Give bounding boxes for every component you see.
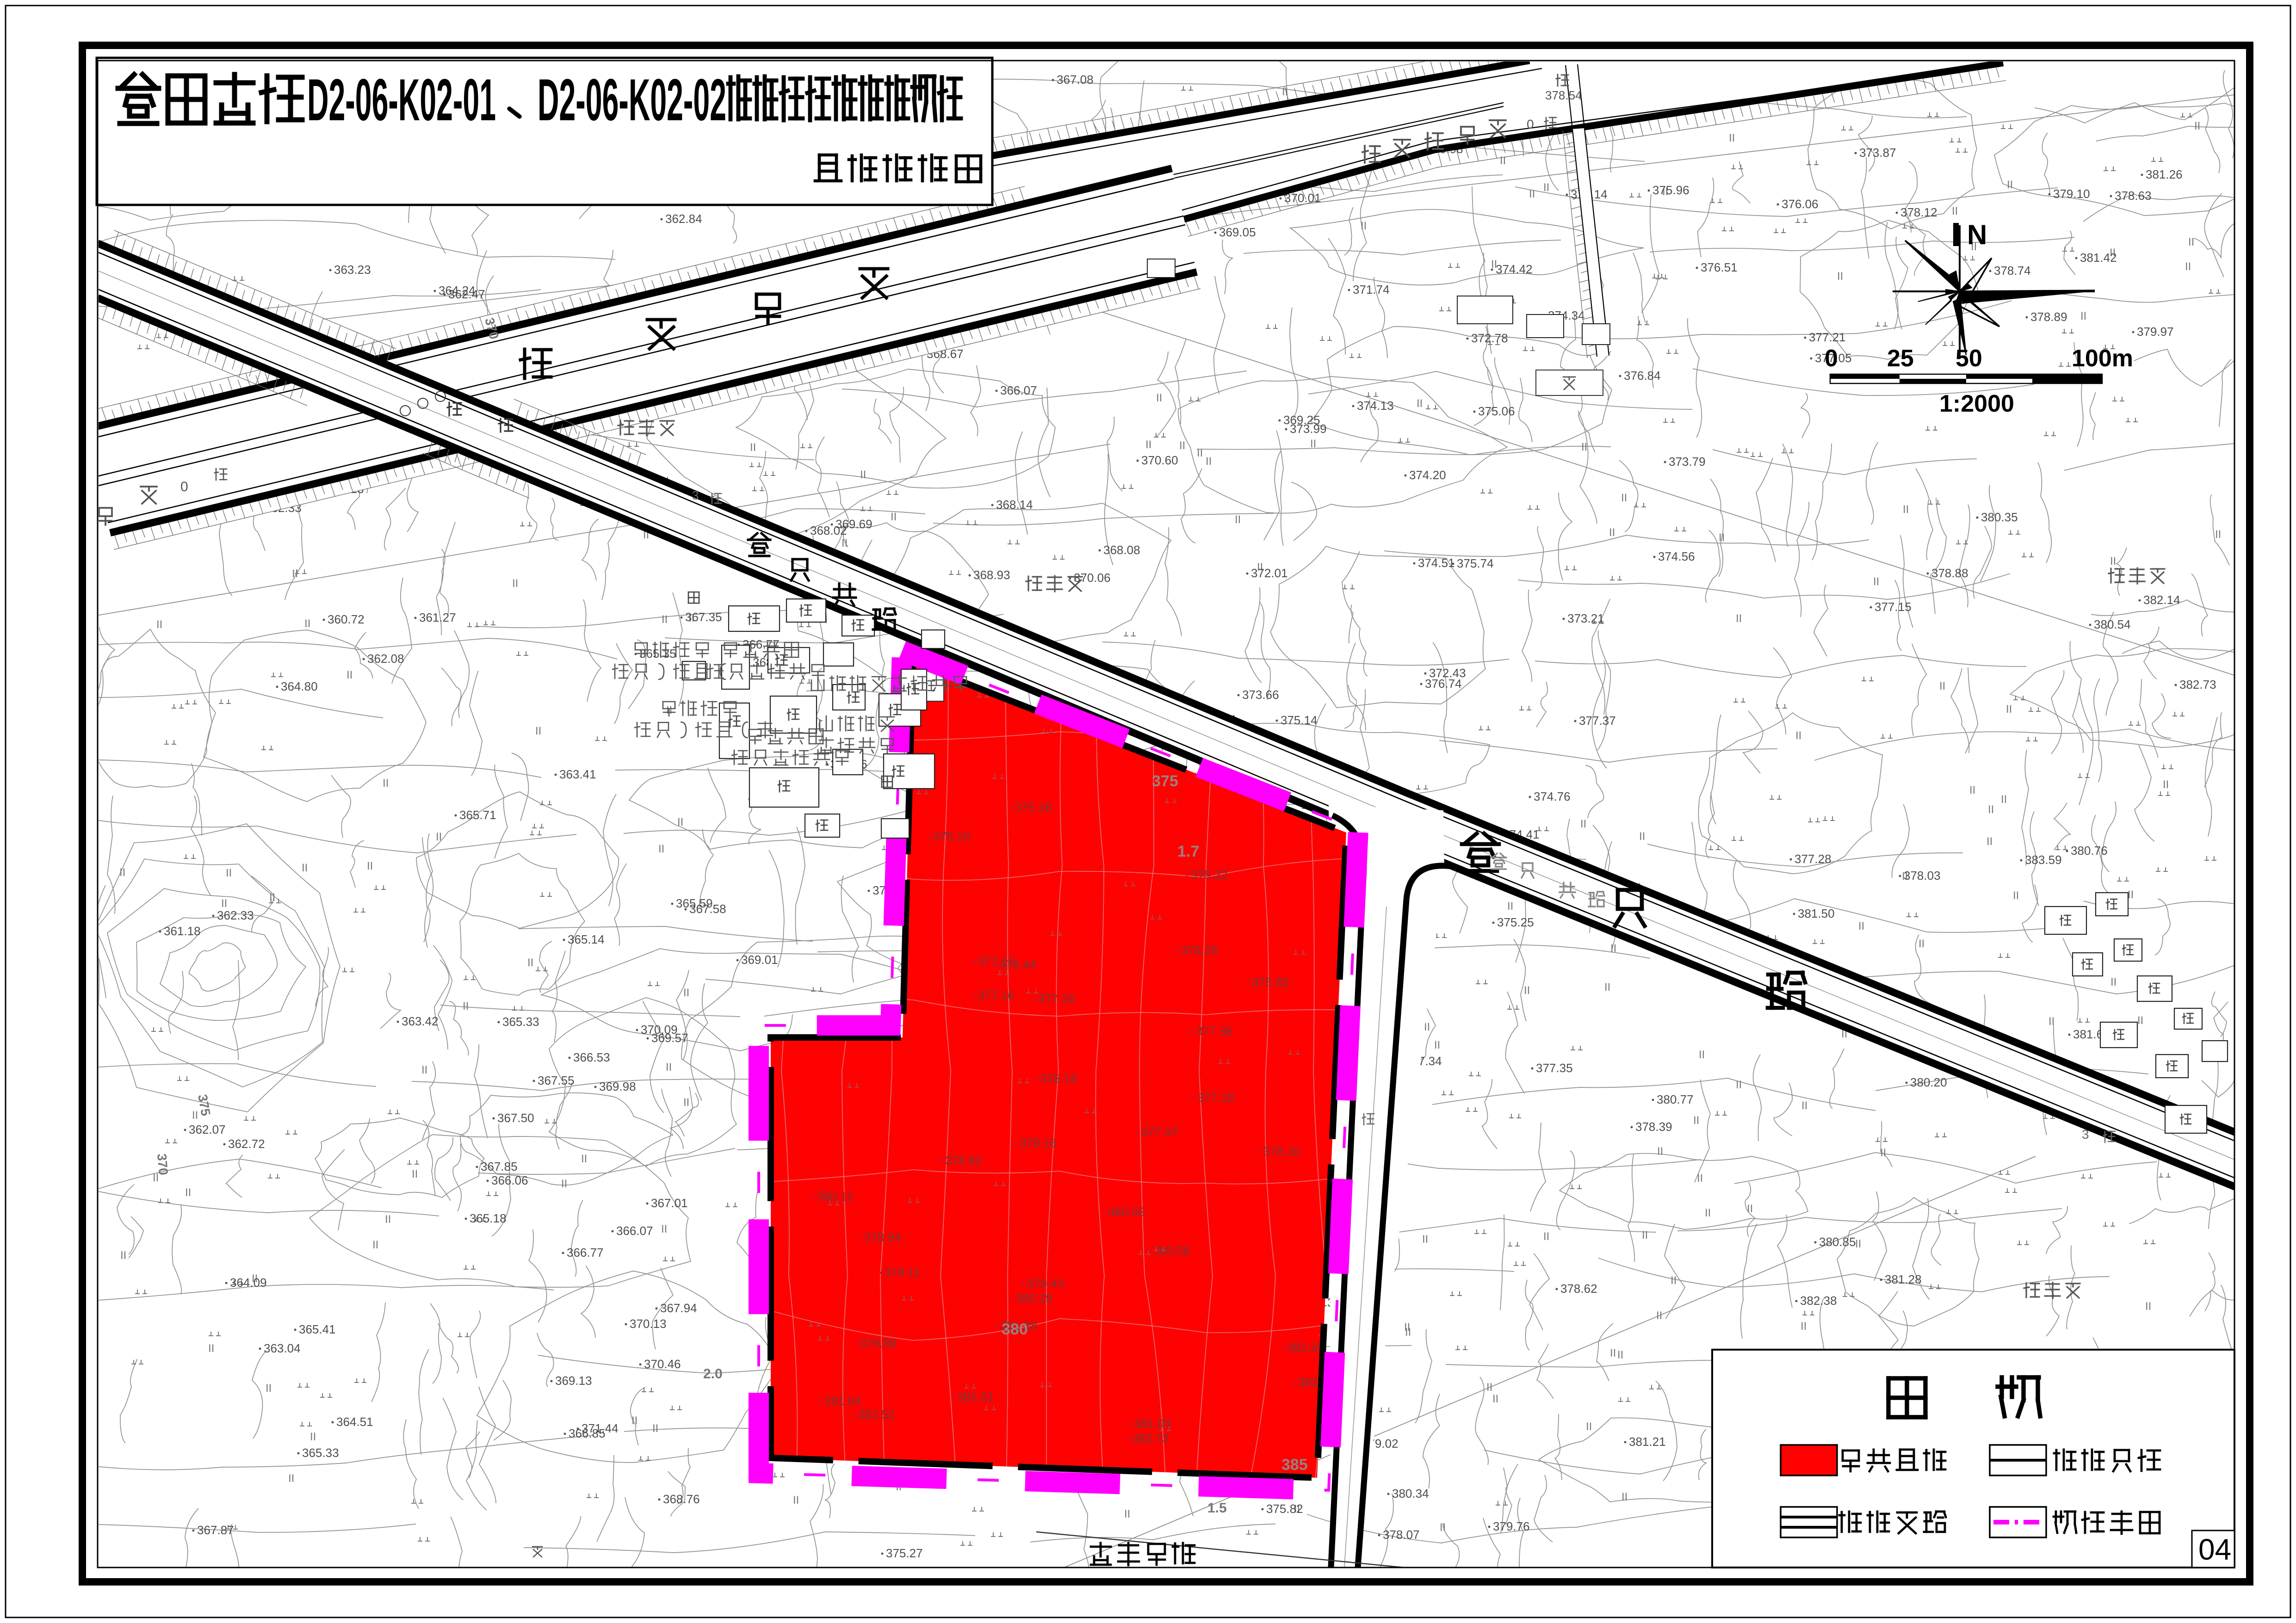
svg-text:II: II (1507, 900, 1513, 913)
svg-text:04: 04 (2198, 1533, 2231, 1566)
svg-text:360.72: 360.72 (328, 612, 365, 626)
svg-text:II: II (1903, 503, 1909, 516)
svg-text:377.36: 377.36 (1196, 1024, 1233, 1038)
svg-text:1:2000: 1:2000 (1939, 390, 2014, 417)
svg-text:368.14: 368.14 (996, 498, 1033, 512)
svg-text:II: II (2080, 310, 2086, 322)
svg-text:II: II (1987, 835, 1993, 848)
svg-text:II: II (1699, 1049, 1705, 1061)
svg-text:II: II (367, 860, 373, 872)
svg-text:II: II (842, 537, 848, 549)
svg-text:376.06: 376.06 (1782, 197, 1819, 211)
svg-text:378.94: 378.94 (864, 1230, 901, 1244)
svg-text:373.87: 373.87 (1859, 146, 1896, 160)
svg-text:379.76: 379.76 (1493, 1519, 1530, 1533)
svg-text:381.28: 381.28 (1885, 1272, 1922, 1286)
svg-text:II: II (436, 831, 442, 843)
svg-text:II: II (2048, 1015, 2055, 1028)
svg-text:367.58: 367.58 (689, 902, 726, 916)
svg-text:3: 3 (692, 488, 699, 502)
svg-text:369.13: 369.13 (555, 1374, 592, 1388)
svg-text:II: II (860, 469, 866, 481)
svg-text:II: II (1405, 1326, 1411, 1339)
svg-text:372.78: 372.78 (1471, 331, 1508, 345)
svg-text:381.09: 381.09 (1134, 1417, 1171, 1431)
svg-text:366.06: 366.06 (491, 1173, 528, 1187)
svg-text:II: II (1639, 830, 1645, 843)
svg-text:381.21: 381.21 (1629, 1435, 1666, 1449)
svg-text:II: II (2007, 179, 2013, 191)
svg-text:362.84: 362.84 (665, 212, 702, 226)
svg-text:II: II (1609, 526, 1615, 539)
svg-text:II: II (1543, 181, 1549, 194)
svg-text:374.76: 374.76 (1534, 790, 1571, 803)
svg-text:II: II (1729, 132, 1735, 144)
svg-text:367.01: 367.01 (651, 1196, 688, 1210)
svg-text:378.63: 378.63 (2115, 189, 2152, 203)
svg-text:II: II (221, 897, 227, 910)
svg-text:II: II (1610, 1347, 1616, 1359)
svg-text:366.07: 366.07 (1000, 383, 1037, 397)
svg-text:375.96: 375.96 (1652, 183, 1690, 197)
svg-text:2.0: 2.0 (703, 1366, 723, 1382)
svg-text:382.52: 382.52 (858, 1407, 895, 1421)
svg-text:361.27: 361.27 (419, 611, 456, 624)
svg-text:II: II (1235, 513, 1241, 526)
svg-text:II: II (1918, 938, 1925, 950)
svg-text:378.10: 378.10 (1263, 1144, 1300, 1158)
svg-text:383.59: 383.59 (2025, 853, 2062, 867)
svg-text:II: II (2137, 1014, 2143, 1027)
svg-text:II: II (1736, 612, 1742, 625)
svg-text:II: II (1361, 220, 1367, 232)
svg-text:II: II (661, 1223, 667, 1235)
svg-text:II: II (677, 816, 683, 828)
svg-text:364.80: 364.80 (281, 679, 318, 693)
svg-text:II: II (1179, 439, 1185, 452)
svg-text:II: II (662, 613, 668, 626)
svg-text:II: II (288, 1472, 294, 1485)
svg-text:II: II (1156, 392, 1162, 404)
svg-text:380.56: 380.56 (1153, 1244, 1190, 1258)
svg-text:375.15: 375.15 (933, 829, 970, 843)
svg-text:375.22: 375.22 (1191, 868, 1228, 882)
svg-text:II: II (1621, 492, 1627, 504)
svg-text:II: II (1197, 447, 1203, 459)
svg-text:362.72: 362.72 (228, 1137, 265, 1151)
svg-text:II: II (2215, 528, 2221, 541)
svg-text:II: II (1747, 1203, 1753, 1215)
svg-text:366.77: 366.77 (567, 1246, 604, 1259)
svg-text:382.73: 382.73 (1132, 1432, 1169, 1445)
svg-text:II: II (2110, 555, 2116, 568)
svg-text:364.51: 364.51 (336, 1415, 373, 1429)
svg-text:381.59: 381.59 (1287, 1340, 1324, 1354)
svg-text:II: II (527, 957, 533, 969)
svg-text:375.27: 375.27 (886, 1546, 923, 1560)
svg-text:367.85: 367.85 (481, 1160, 518, 1173)
svg-text:II: II (1310, 438, 1316, 450)
svg-text:II: II (119, 866, 125, 879)
svg-text:II: II (269, 891, 275, 904)
svg-text:II: II (463, 1000, 469, 1012)
svg-text:382.38: 382.38 (1800, 1294, 1837, 1308)
svg-text:II: II (1422, 1233, 1428, 1246)
svg-text:377.18: 377.18 (1197, 1091, 1234, 1105)
svg-text:365.71: 365.71 (459, 808, 496, 822)
svg-text:376.26: 376.26 (1181, 943, 1218, 957)
svg-text:D2-06-K02-01: D2-06-K02-01 (307, 67, 496, 133)
svg-text:364.09: 364.09 (230, 1276, 267, 1290)
svg-text:II: II (1524, 984, 1530, 997)
svg-text:380.34: 380.34 (1392, 1487, 1429, 1500)
svg-text:361.18: 361.18 (164, 924, 201, 938)
svg-text:II: II (1801, 1320, 1807, 1333)
svg-text:1.5: 1.5 (1207, 1500, 1227, 1516)
svg-text:II: II (226, 867, 232, 879)
svg-text:363.41: 363.41 (559, 767, 596, 781)
svg-text:0: 0 (1527, 117, 1534, 131)
svg-text:379.97: 379.97 (2137, 325, 2174, 339)
svg-text:373.66: 373.66 (1242, 688, 1279, 702)
svg-text:380.77: 380.77 (1657, 1092, 1694, 1106)
svg-text:365.41: 365.41 (299, 1322, 336, 1336)
svg-text:II: II (1858, 920, 1864, 932)
svg-text:II: II (666, 1061, 672, 1074)
svg-text:375.25: 375.25 (1497, 915, 1534, 929)
svg-text:378.39: 378.39 (1635, 1120, 1672, 1134)
svg-text:363.42: 363.42 (402, 1014, 439, 1028)
svg-text:374.42: 374.42 (1496, 262, 1533, 276)
svg-text:375.74: 375.74 (1457, 556, 1494, 570)
svg-text:D2-06-K02-02: D2-06-K02-02 (538, 67, 726, 133)
svg-text:373.21: 373.21 (1567, 611, 1604, 625)
svg-text:II: II (1543, 1230, 1549, 1243)
svg-text:II: II (2188, 236, 2194, 248)
svg-text:381.26: 381.26 (2146, 167, 2183, 181)
svg-text:379.88: 379.88 (860, 1336, 897, 1350)
svg-text:50: 50 (1956, 345, 1982, 372)
svg-text:II: II (652, 1422, 658, 1435)
svg-text:II: II (1880, 1147, 1886, 1159)
svg-text:378.89: 378.89 (2030, 310, 2067, 324)
svg-text:II: II (2006, 703, 2012, 716)
svg-text:II: II (1529, 188, 1535, 200)
svg-text:0: 0 (180, 479, 188, 494)
svg-text:II: II (208, 1342, 214, 1355)
svg-text:II: II (1206, 455, 1212, 468)
svg-text:II: II (1617, 1349, 1623, 1361)
svg-text:380.29: 380.29 (1015, 1291, 1052, 1305)
svg-text:385: 385 (1281, 1456, 1308, 1474)
svg-text:II: II (372, 1239, 378, 1251)
svg-text:365.14: 365.14 (568, 932, 605, 946)
svg-text:378.82: 378.82 (945, 1154, 982, 1167)
svg-text:376.44: 376.44 (999, 957, 1036, 971)
svg-text:377.37: 377.37 (1579, 714, 1616, 728)
svg-text:368.08: 368.08 (1103, 543, 1140, 557)
svg-text:376.51: 376.51 (1701, 260, 1738, 274)
svg-text:379.10: 379.10 (2053, 187, 2090, 201)
svg-text:100m: 100m (2072, 345, 2133, 372)
svg-text:375.83: 375.83 (1252, 975, 1289, 989)
svg-text:378.54: 378.54 (1545, 88, 1582, 102)
svg-text:366.53: 366.53 (573, 1050, 610, 1064)
svg-text:380.85: 380.85 (1819, 1235, 1856, 1249)
svg-text:374.13: 374.13 (1357, 399, 1394, 413)
svg-text:367.87: 367.87 (197, 1523, 234, 1537)
svg-text:376.74: 376.74 (1425, 677, 1462, 691)
svg-text:381.42: 381.42 (2080, 251, 2117, 265)
svg-text:377.26: 377.26 (1038, 992, 1075, 1006)
svg-text:379.43: 379.43 (1027, 1277, 1064, 1290)
svg-text:II: II (1657, 1145, 1663, 1158)
svg-text:II: II (385, 1213, 391, 1226)
svg-text:377.16: 377.16 (978, 988, 1015, 1002)
svg-text:II: II (1580, 818, 1586, 830)
svg-text:363.23: 363.23 (334, 263, 371, 277)
svg-text:362.33: 362.33 (217, 908, 254, 922)
svg-text:II: II (1440, 1521, 1446, 1534)
svg-text:378.88: 378.88 (1931, 566, 1968, 580)
svg-text:377.35: 377.35 (1536, 1061, 1573, 1075)
svg-text:II: II (1610, 942, 1616, 955)
svg-text:382.73: 382.73 (2179, 678, 2216, 691)
svg-text:380.35: 380.35 (1981, 510, 2018, 524)
svg-text:375: 375 (1152, 772, 1178, 790)
svg-text:II: II (1500, 154, 1506, 167)
svg-text:378.07: 378.07 (1383, 1528, 1420, 1542)
svg-text:381.50: 381.50 (1798, 907, 1835, 920)
svg-text:382.14: 382.14 (2143, 593, 2180, 607)
svg-text:II: II (192, 1109, 198, 1122)
svg-text:375.14: 375.14 (1281, 713, 1318, 727)
svg-text:II: II (891, 511, 897, 523)
svg-text:II: II (2163, 778, 2169, 791)
svg-text:377.28: 377.28 (1795, 852, 1832, 866)
svg-text:377.97: 377.97 (1141, 1125, 1178, 1139)
svg-text:363.04: 363.04 (264, 1341, 301, 1355)
svg-text:374.20: 374.20 (1409, 468, 1446, 482)
svg-text:II: II (581, 1153, 587, 1165)
svg-text:II: II (1801, 1099, 1807, 1112)
svg-text:II: II (304, 617, 310, 630)
svg-text:379.11: 379.11 (884, 1265, 920, 1279)
svg-text:362.47: 362.47 (448, 287, 485, 301)
svg-text:II: II (120, 1249, 126, 1262)
svg-text:367.94: 367.94 (660, 1301, 697, 1315)
svg-text:371.74: 371.74 (1353, 283, 1390, 296)
svg-text:0: 0 (1825, 345, 1838, 372)
svg-text:25: 25 (1887, 345, 1914, 372)
svg-text:II: II (1145, 438, 1151, 451)
svg-text:II: II (302, 862, 308, 874)
svg-text:II: II (2194, 120, 2200, 132)
svg-text:II: II (292, 568, 298, 580)
svg-text:II: II (1873, 575, 1879, 588)
svg-text:381.04: 381.04 (824, 1394, 861, 1408)
svg-text:II: II (512, 577, 518, 590)
svg-text:II: II (412, 1168, 418, 1180)
svg-text:380.54: 380.54 (2094, 617, 2131, 631)
svg-text:367.35: 367.35 (685, 610, 722, 624)
svg-text:II: II (1693, 1114, 1699, 1127)
svg-text:375.82: 375.82 (1266, 1502, 1303, 1516)
svg-text:II: II (1697, 1172, 1703, 1185)
svg-text:II: II (1671, 1274, 1677, 1287)
svg-text:II: II (658, 843, 664, 855)
svg-text:II: II (1656, 1309, 1662, 1322)
svg-text:II: II (421, 1064, 427, 1076)
svg-text:378.62: 378.62 (1560, 1282, 1597, 1296)
svg-text:II: II (561, 1178, 567, 1190)
svg-text:381.51: 381.51 (957, 1390, 994, 1404)
svg-text:375.06: 375.06 (1478, 404, 1515, 418)
svg-text:372.01: 372.01 (1251, 566, 1288, 580)
svg-text:II: II (1124, 1508, 1130, 1520)
svg-text:II: II (383, 777, 389, 790)
svg-text:II: II (1434, 1039, 1440, 1051)
svg-text:II: II (185, 1186, 191, 1199)
svg-text:II: II (1988, 803, 1994, 816)
svg-text:374.51: 374.51 (1418, 556, 1455, 570)
svg-text:II: II (683, 987, 689, 999)
svg-text:II: II (1621, 1491, 1628, 1503)
svg-text:II: II (535, 725, 541, 737)
svg-text:II: II (2185, 260, 2191, 273)
svg-text:377.21: 377.21 (1809, 330, 1846, 344)
svg-text:3: 3 (2082, 1127, 2089, 1142)
svg-text:368.93: 368.93 (973, 568, 1010, 582)
svg-text:369.01: 369.01 (741, 953, 778, 967)
svg-text:II: II (1586, 1420, 1592, 1433)
svg-text:378.03: 378.03 (1904, 869, 1941, 882)
svg-text:370.09: 370.09 (641, 1023, 678, 1037)
svg-text:376.84: 376.84 (1624, 369, 1661, 383)
svg-text:II: II (1705, 1207, 1711, 1219)
svg-text:II: II (683, 1096, 689, 1109)
svg-text:369.98: 369.98 (599, 1080, 636, 1093)
svg-text:II: II (1736, 1079, 1742, 1091)
svg-text:II: II (1604, 981, 1610, 994)
svg-text:365.33: 365.33 (502, 1015, 539, 1029)
svg-text:II: II (1795, 729, 1801, 742)
svg-text:II: II (2145, 1300, 2151, 1313)
svg-text:365.18: 365.18 (470, 1211, 507, 1225)
svg-text:II: II (1581, 441, 1587, 453)
svg-text:II: II (1952, 205, 1958, 217)
svg-text:375.18: 375.18 (1015, 800, 1052, 814)
svg-text:367.08: 367.08 (1057, 73, 1094, 86)
svg-text:378.74: 378.74 (1994, 264, 2031, 278)
svg-text:374.56: 374.56 (1658, 549, 1695, 563)
svg-text:II: II (1855, 1238, 1861, 1250)
svg-text:373.79: 373.79 (1669, 455, 1706, 469)
svg-text:380.76: 380.76 (2071, 844, 2108, 858)
svg-text:367.55: 367.55 (538, 1074, 575, 1087)
svg-text:II: II (266, 1382, 272, 1395)
svg-text:378.12: 378.12 (1900, 205, 1937, 219)
svg-text:379.16: 379.16 (1020, 1136, 1057, 1150)
svg-text:1.7: 1.7 (1177, 843, 1199, 860)
svg-text:II: II (310, 1431, 316, 1443)
svg-text:362.08: 362.08 (367, 652, 404, 666)
svg-text:368.76: 368.76 (663, 1492, 700, 1506)
svg-text:II: II (750, 441, 756, 454)
svg-text:II: II (1719, 531, 1725, 544)
svg-text:366.07: 366.07 (616, 1224, 653, 1238)
svg-text:380.02: 380.02 (1108, 1205, 1145, 1219)
svg-text:II: II (1642, 1229, 1648, 1241)
svg-text:378.16: 378.16 (1040, 1072, 1077, 1086)
svg-text:N: N (1967, 219, 1987, 250)
svg-text:370.13: 370.13 (630, 1317, 667, 1331)
svg-text:II: II (1837, 270, 1843, 283)
svg-text:380.20: 380.20 (1910, 1075, 1947, 1089)
svg-text:II: II (631, 1414, 637, 1427)
svg-text:370: 370 (155, 1153, 171, 1176)
svg-text:367.50: 367.50 (497, 1111, 534, 1125)
svg-text:370.46: 370.46 (644, 1357, 681, 1371)
svg-text:365.33: 365.33 (302, 1446, 339, 1460)
svg-text:380.12: 380.12 (817, 1190, 854, 1203)
svg-text:377.15: 377.15 (1875, 600, 1912, 614)
svg-text:II: II (347, 669, 353, 681)
svg-text:369.69: 369.69 (835, 517, 873, 531)
svg-text:II: II (2001, 793, 2007, 806)
svg-text:II: II (156, 618, 162, 631)
svg-text:II: II (1939, 680, 1945, 692)
svg-text:II: II (2013, 889, 2019, 902)
svg-text:II: II (1969, 784, 1975, 796)
svg-text:366.85: 366.85 (569, 1426, 606, 1440)
svg-text:II: II (2110, 976, 2117, 988)
svg-text:II: II (1486, 1381, 1492, 1394)
svg-text:369.25: 369.25 (1283, 413, 1320, 427)
svg-text:362.07: 362.07 (189, 1123, 226, 1136)
svg-text:II: II (793, 1494, 799, 1506)
svg-text:II: II (1417, 397, 1423, 410)
svg-text:II: II (1492, 1393, 1498, 1405)
svg-text:369.05: 369.05 (1219, 225, 1256, 239)
svg-text:370.60: 370.60 (1141, 453, 1178, 467)
svg-text:380: 380 (1002, 1321, 1028, 1338)
